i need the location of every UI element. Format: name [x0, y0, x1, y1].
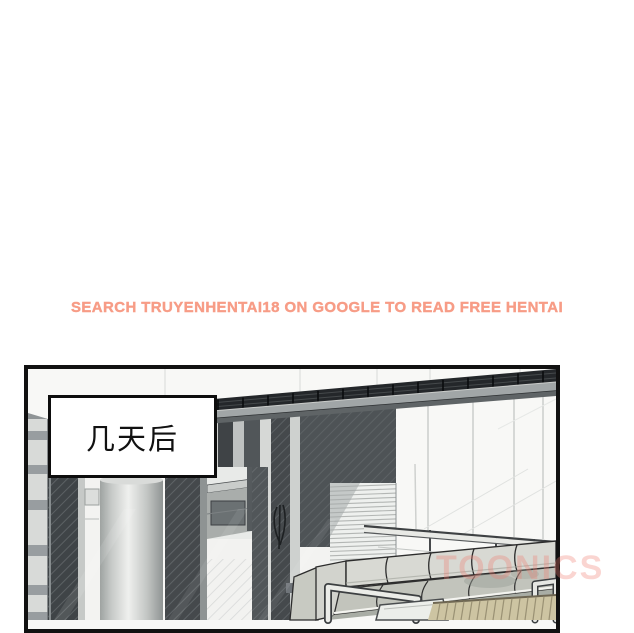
caption-text: 几天后	[86, 416, 179, 458]
dark-pillar-right	[252, 467, 268, 620]
banded-column	[28, 413, 48, 620]
watermark-text: TOONICS	[436, 549, 604, 588]
caption-box: 几天后	[48, 395, 217, 478]
sideboard-counter	[207, 467, 252, 620]
comic-panel: 几天后	[24, 365, 560, 633]
ad-banner-text: SEARCH TRUYENHENTAI18 ON GOOGLE TO READ …	[0, 297, 634, 319]
